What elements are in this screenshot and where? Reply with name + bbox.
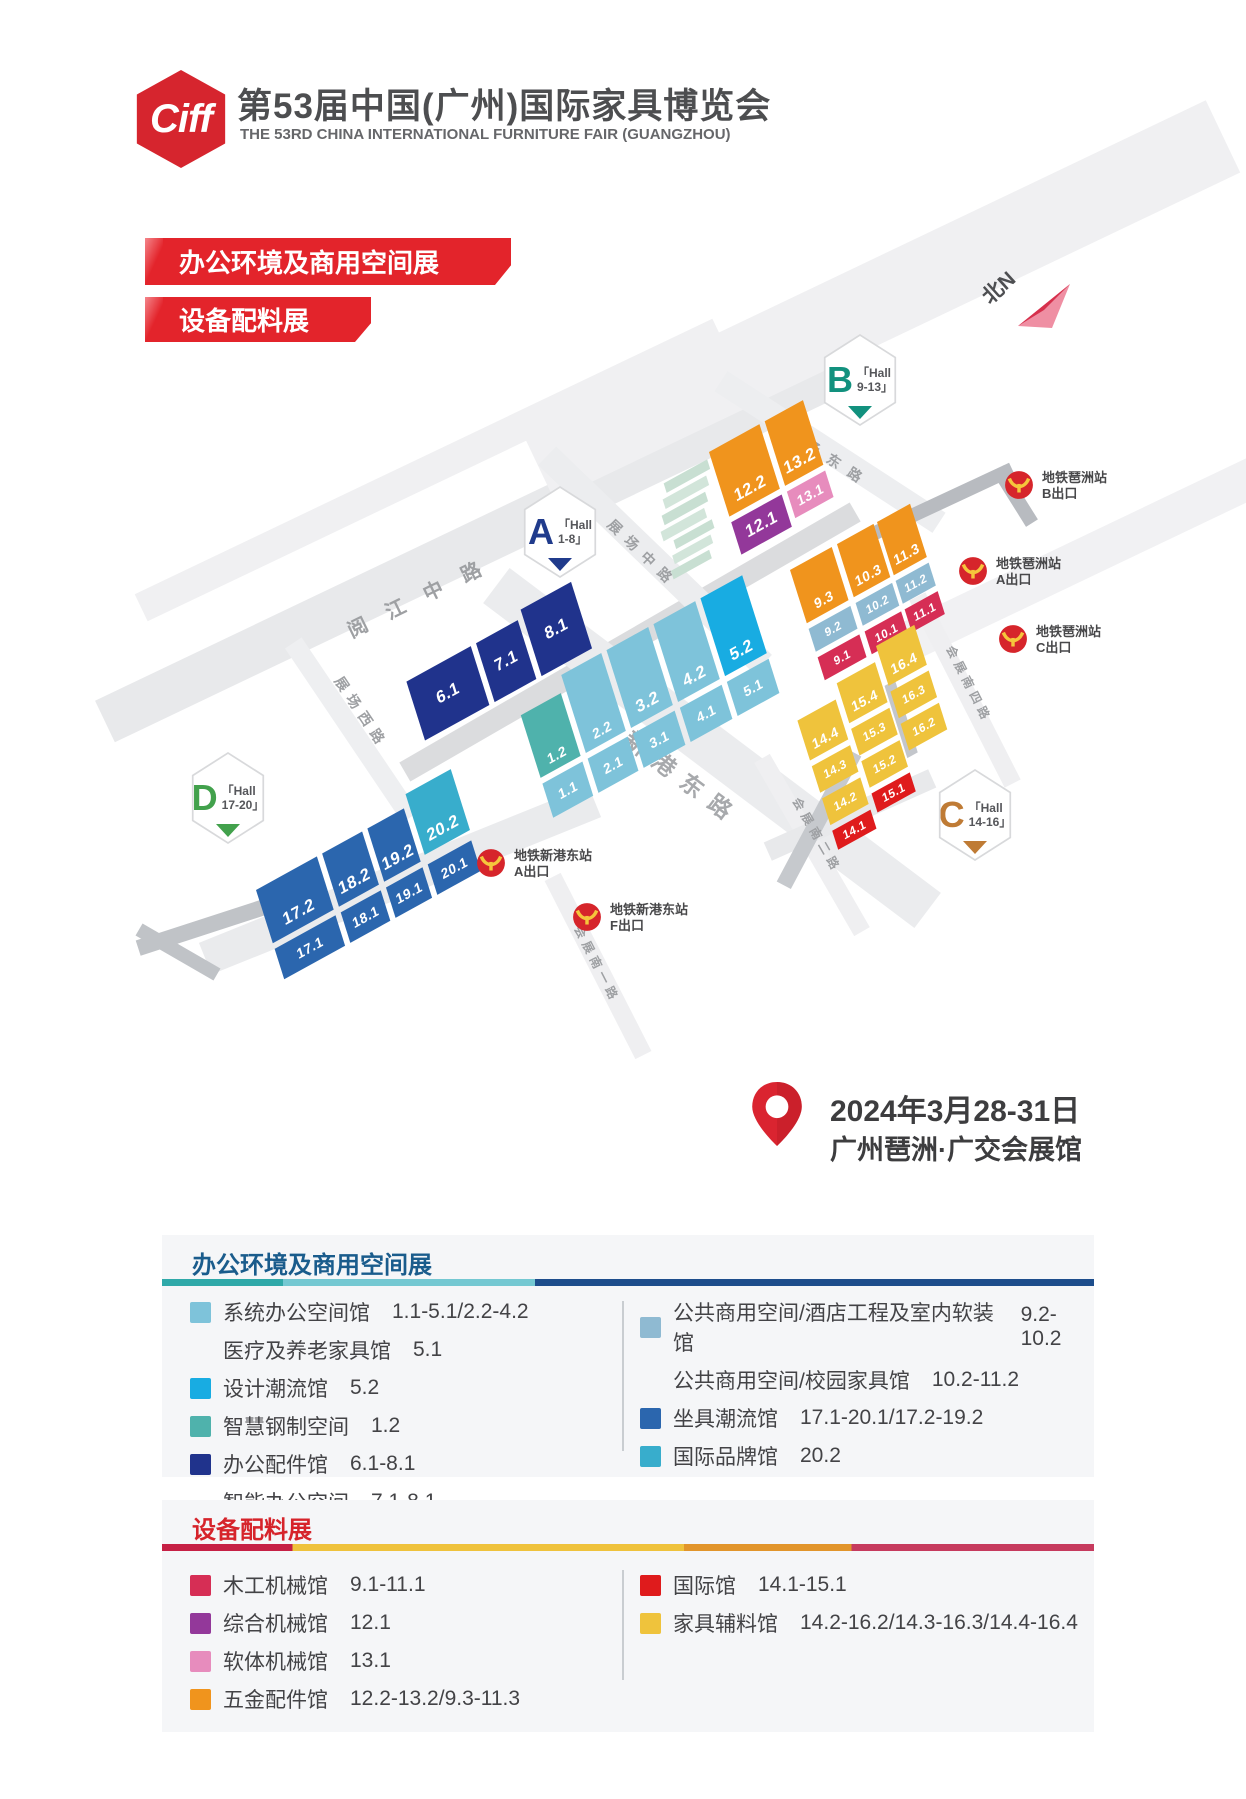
metro-icon xyxy=(958,556,988,586)
legend-title: 办公环境及商用空间展 xyxy=(192,1245,432,1280)
swatch-pink xyxy=(190,1651,211,1672)
legend-equipment-show: 设备配料展 木工机械馆9.1-11.1 综合机械馆12.1 软体机械馆13.1 … xyxy=(162,1500,1094,1732)
hall-block-label: 12.2 xyxy=(732,471,769,507)
metro-station-name: 地铁琶洲站 xyxy=(996,556,1061,572)
legend-range: 10.2-11.2 xyxy=(932,1368,1019,1392)
legend-title: 设备配料展 xyxy=(192,1510,312,1545)
legend-item: 智慧钢制空间1.2 xyxy=(190,1411,529,1441)
legend-label: 国际馆 xyxy=(673,1570,736,1600)
hall-block-label: 2.1 xyxy=(602,752,625,777)
swatch-cyan2 xyxy=(640,1446,661,1467)
metro-xingangdong-exit-f: 地铁新港东站F出口 xyxy=(572,902,688,934)
hall-text-line1: 「Hall xyxy=(969,801,1012,815)
hall-block-label: 16.4 xyxy=(889,648,919,677)
banner-equipment-show: 设备配料展 xyxy=(145,297,371,342)
hall-marker-B: B 「Hall9-13」 xyxy=(818,334,902,426)
legend-divider xyxy=(622,1570,624,1680)
swatch-crimson xyxy=(190,1575,211,1596)
hall-marker-D: D 「Hall17-20」 xyxy=(186,752,270,844)
road-zhanchang-xi xyxy=(285,637,419,822)
legend-item: 设计潮流馆5.2 xyxy=(190,1373,529,1403)
hall-block-label: 5.1 xyxy=(742,675,765,700)
legend-item: 办公配件馆6.1-8.1 xyxy=(190,1449,529,1479)
hall-block-label: 19.1 xyxy=(394,878,424,907)
hall-block-label: 1.1 xyxy=(556,777,579,802)
hall-block-label: 13.2 xyxy=(781,443,818,479)
hall-marker-A: A 「Hall1-8」 xyxy=(518,486,602,578)
metro-station-name: 地铁新港东站 xyxy=(610,902,688,918)
legend-item: 医疗及养老家具馆5.1 xyxy=(190,1335,529,1365)
metro-pazhou-exit-b: 地铁琶洲站B出口 xyxy=(1004,470,1107,502)
metro-icon xyxy=(476,848,506,878)
metro-exit: A出口 xyxy=(996,572,1061,588)
hall-text-line2: 1-8」 xyxy=(558,532,592,546)
road-label-huizhan-yi: 会展南一路 xyxy=(570,923,624,1006)
hex-pointer xyxy=(963,841,987,854)
hall-block-label: 14.3 xyxy=(822,756,848,781)
banner-equipment-label: 设备配料展 xyxy=(179,301,309,338)
legend-item: 软体机械馆13.1 xyxy=(190,1646,520,1676)
hex-pointer xyxy=(216,824,240,837)
metro-icon xyxy=(998,624,1028,654)
hall-block-label: 15.2 xyxy=(872,751,898,776)
ciff-logo-text: Ciff xyxy=(150,97,212,142)
hall-block-label: 5.2 xyxy=(727,635,755,666)
hall-letter: B xyxy=(827,359,853,401)
legend-range: 1.2 xyxy=(371,1414,400,1438)
hall-letter: D xyxy=(192,777,218,819)
legend-label: 智慧钢制空间 xyxy=(223,1411,349,1441)
legend-item: 国际品牌馆20.2 xyxy=(640,1441,1094,1471)
page-title: 第53届中国(广州)国际家具博览会 xyxy=(237,78,771,129)
legend-column: 国际馆14.1-15.1 家具辅料馆14.2-16.2/14.3-16.3/14… xyxy=(640,1570,1078,1646)
hall-marker-C: C 「Hall14-16」 xyxy=(933,769,1017,861)
hall-letter: A xyxy=(528,511,554,553)
hex-pointer xyxy=(548,558,572,571)
hall-block-label: 2.2 xyxy=(590,717,613,742)
banner-office-show: 办公环境及商用空间展 xyxy=(145,238,511,285)
hall-block-label: 18.1 xyxy=(350,902,380,931)
legend-item: 国际馆14.1-15.1 xyxy=(640,1570,1078,1600)
legend-label: 系统办公空间馆 xyxy=(223,1297,370,1327)
event-venue: 广州琶洲·广交会展馆 xyxy=(830,1128,1082,1167)
hall-block-label: 10.3 xyxy=(853,560,883,589)
ciff-logo: Ciff xyxy=(133,70,229,168)
hall-block-label: 16.2 xyxy=(911,714,937,739)
north-arrow-icon xyxy=(1018,282,1072,330)
legend-range: 6.1-8.1 xyxy=(350,1452,415,1476)
swatch-orange xyxy=(190,1689,211,1710)
hall-block-label: 17.1 xyxy=(295,933,325,962)
legend-range: 1.1-5.1/2.2-4.2 xyxy=(392,1300,529,1324)
metro-station-name: 地铁琶洲站 xyxy=(1036,624,1101,640)
swatch-blue xyxy=(640,1408,661,1429)
legend-label: 家具辅料馆 xyxy=(673,1608,778,1638)
legend-label: 公共商用空间/校园家具馆 xyxy=(673,1365,910,1395)
hall-block-label: 15.3 xyxy=(861,719,887,744)
hall-block-label: 14.4 xyxy=(810,723,840,752)
legend-range: 13.1 xyxy=(350,1649,391,1673)
legend-label: 坐具潮流馆 xyxy=(673,1403,778,1433)
legend-label: 国际品牌馆 xyxy=(673,1441,778,1471)
swatch-steelblue xyxy=(640,1317,661,1338)
metro-xingangdong-exit-a: 地铁新港东站A出口 xyxy=(476,848,592,880)
hall-block-label: 4.1 xyxy=(695,701,718,726)
hall-block-label: 10.2 xyxy=(864,592,890,617)
hall-block-label: 16.3 xyxy=(901,682,927,707)
hall-text-line1: 「Hall xyxy=(558,518,592,532)
hall-block-label: 15.4 xyxy=(849,686,879,715)
page-subtitle: THE 53RD CHINA INTERNATIONAL FURNITURE F… xyxy=(240,126,731,143)
legend-column: 系统办公空间馆1.1-5.1/2.2-4.2 医疗及养老家具馆5.1 设计潮流馆… xyxy=(190,1297,529,1525)
legend-item: 公共商用空间/酒店工程及室内软装馆9.2-10.2 xyxy=(640,1297,1094,1357)
swatch-none xyxy=(190,1340,211,1361)
swatch-cyan xyxy=(190,1378,211,1399)
legend-item: 家具辅料馆14.2-16.2/14.3-16.3/14.4-16.4 xyxy=(640,1608,1078,1638)
hall-text-line2: 14-16」 xyxy=(969,815,1012,829)
swatch-none xyxy=(640,1370,661,1391)
legend-range: 12.1 xyxy=(350,1611,391,1635)
legend-divider xyxy=(622,1301,624,1451)
hall-block-label: 11.3 xyxy=(892,539,922,568)
legend-label: 设计潮流馆 xyxy=(223,1373,328,1403)
legend-item: 综合机械馆12.1 xyxy=(190,1608,520,1638)
metro-exit: F出口 xyxy=(610,918,688,934)
legend-label: 医疗及养老家具馆 xyxy=(223,1335,391,1365)
swatch-lightblue xyxy=(190,1302,211,1323)
page: { "header": { "logo_text": "Ciff", "titl… xyxy=(0,0,1246,1799)
legend-label: 综合机械馆 xyxy=(223,1608,328,1638)
legend-range: 9.2-10.2 xyxy=(1021,1303,1094,1351)
hall-block-label: 7.1 xyxy=(492,646,520,677)
legend-column: 木工机械馆9.1-11.1 综合机械馆12.1 软体机械馆13.1 五金配件馆1… xyxy=(190,1570,520,1722)
swatch-navy xyxy=(190,1454,211,1475)
legend-item: 五金配件馆12.2-13.2/9.3-11.3 xyxy=(190,1684,520,1714)
legend-gradient-bar xyxy=(162,1279,1094,1286)
hex-pointer xyxy=(848,406,872,419)
legend-label: 五金配件馆 xyxy=(223,1684,328,1714)
legend-range: 14.2-16.2/14.3-16.3/14.4-16.4 xyxy=(800,1611,1078,1635)
hall-block-label: 20.1 xyxy=(439,853,469,882)
swatch-teal xyxy=(190,1416,211,1437)
hall-block-label: 1.2 xyxy=(545,742,568,767)
hall-text-line1: 「Hall xyxy=(857,366,893,380)
legend-range: 17.1-20.1/17.2-19.2 xyxy=(800,1406,983,1430)
hall-block-label: 3.1 xyxy=(648,727,671,752)
legend-label: 办公配件馆 xyxy=(223,1449,328,1479)
hall-text-line1: 「Hall xyxy=(222,784,265,798)
metro-pazhou-exit-c: 地铁琶洲站C出口 xyxy=(998,624,1101,656)
legend-label: 软体机械馆 xyxy=(223,1646,328,1676)
hall-block-label: 14.2 xyxy=(832,789,858,814)
hall-block-label: 9.1 xyxy=(832,646,852,668)
legend-gradient-bar xyxy=(162,1544,1094,1551)
legend-range: 20.2 xyxy=(800,1444,841,1468)
legend-range: 5.2 xyxy=(350,1376,379,1400)
event-date: 2024年3月28-31日 xyxy=(830,1086,1080,1130)
metro-icon xyxy=(1004,470,1034,500)
legend-item: 系统办公空间馆1.1-5.1/2.2-4.2 xyxy=(190,1297,529,1327)
legend-range: 12.2-13.2/9.3-11.3 xyxy=(350,1687,520,1711)
hall-text-line2: 9-13」 xyxy=(857,380,893,394)
legend-item: 坐具潮流馆17.1-20.1/17.2-19.2 xyxy=(640,1403,1094,1433)
road xyxy=(520,100,1240,499)
legend-office-show: 办公环境及商用空间展 系统办公空间馆1.1-5.1/2.2-4.2 医疗及养老家… xyxy=(162,1235,1094,1477)
metro-exit: C出口 xyxy=(1036,640,1101,656)
legend-column: 公共商用空间/酒店工程及室内软装馆9.2-10.2 公共商用空间/校园家具馆10… xyxy=(640,1297,1094,1479)
legend-range: 14.1-15.1 xyxy=(758,1573,847,1597)
legend-item: 公共商用空间/校园家具馆10.2-11.2 xyxy=(640,1365,1094,1395)
banner-office-label: 办公环境及商用空间展 xyxy=(179,243,439,280)
metro-icon xyxy=(572,902,602,932)
metro-pazhou-exit-a: 地铁琶洲站A出口 xyxy=(958,556,1061,588)
hall-block-label: 8.1 xyxy=(542,613,570,644)
hall-block-label: 3.2 xyxy=(634,687,662,718)
hall-block-label: 12.1 xyxy=(743,507,780,543)
metro-station-name: 地铁琶洲站 xyxy=(1042,470,1107,486)
legend-item: 木工机械馆9.1-11.1 xyxy=(190,1570,520,1600)
hall-block-label: 9.3 xyxy=(812,587,835,612)
swatch-red xyxy=(640,1575,661,1596)
legend-label: 木工机械馆 xyxy=(223,1570,328,1600)
legend-label: 公共商用空间/酒店工程及室内软装馆 xyxy=(673,1297,999,1357)
hall-letter: C xyxy=(939,794,965,836)
metro-exit: B出口 xyxy=(1042,486,1107,502)
hall-text-line2: 17-20」 xyxy=(222,798,265,812)
hall-block-label: 4.2 xyxy=(680,661,708,692)
legend-range: 5.1 xyxy=(413,1338,442,1362)
metro-station-name: 地铁新港东站 xyxy=(514,848,592,864)
metro-exit: A出口 xyxy=(514,864,592,880)
swatch-purple xyxy=(190,1613,211,1634)
location-pin-icon xyxy=(752,1082,802,1146)
hall-block-label: 13.1 xyxy=(795,480,825,509)
legend-range: 9.1-11.1 xyxy=(350,1573,426,1597)
hall-block-label: 6.1 xyxy=(434,678,462,709)
hall-block-label: 9.2 xyxy=(823,618,843,640)
swatch-yellow xyxy=(640,1613,661,1634)
